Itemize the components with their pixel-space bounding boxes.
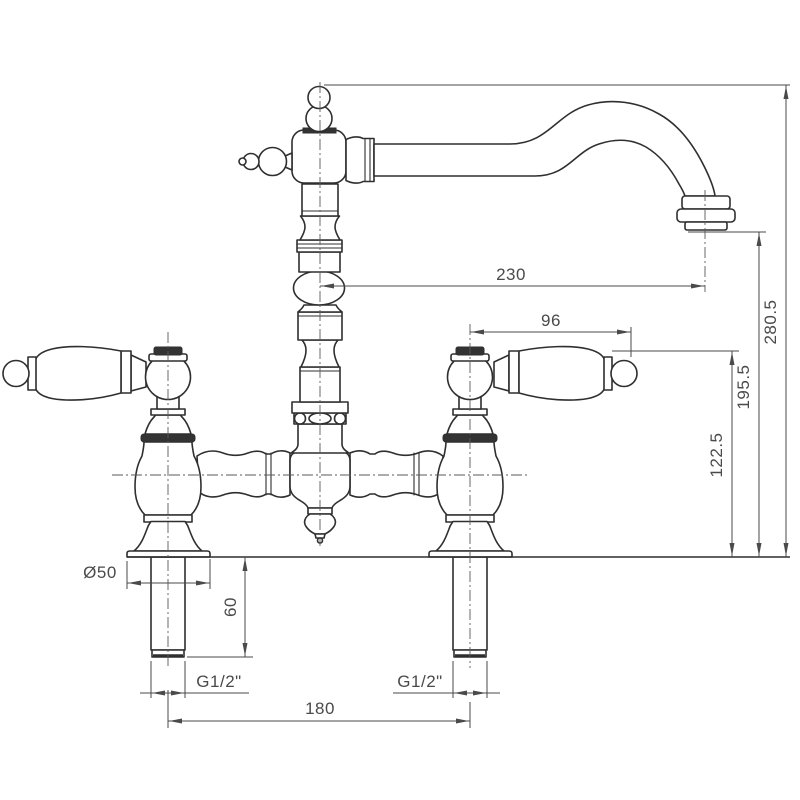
bead-left — [295, 413, 306, 424]
right-base-flange — [429, 551, 512, 557]
left-lever-ball — [3, 361, 29, 387]
dim-label-spout-outlet-height: 195.5 — [734, 364, 753, 409]
dim-label-base-diameter: Ø50 — [83, 563, 117, 582]
swivel-hub — [292, 130, 346, 183]
right-lever-grip — [519, 347, 605, 401]
side-ball-large — [259, 148, 287, 176]
finial-ball-large — [306, 106, 332, 132]
dim-label-overall-height: 280.5 — [761, 299, 780, 344]
spout-outlet — [677, 196, 735, 230]
left-base-flange — [127, 551, 210, 557]
dim-label-hole-centres: 180 — [305, 699, 335, 718]
left-lever-grip — [35, 347, 121, 401]
column-bead-sphere — [294, 271, 345, 305]
dim-label-handle-length: 96 — [541, 311, 561, 330]
dim-label-right-thread: G1/2" — [397, 672, 442, 691]
dim-label-shank-length: 60 — [221, 597, 240, 617]
faucet-technical-drawing: 280.5 195.5 122.5 230 96 Ø50 — [0, 0, 800, 800]
dim-label-spout-reach: 230 — [496, 265, 526, 284]
finial-ball-small — [308, 87, 330, 109]
dim-label-left-thread: G1/2" — [196, 672, 241, 691]
right-lever-ball — [611, 361, 637, 387]
dim-label-handle-height: 122.5 — [707, 432, 726, 477]
technical-drawing-page: 280.5 195.5 122.5 230 96 Ø50 — [0, 0, 800, 800]
bead-right — [335, 413, 346, 424]
